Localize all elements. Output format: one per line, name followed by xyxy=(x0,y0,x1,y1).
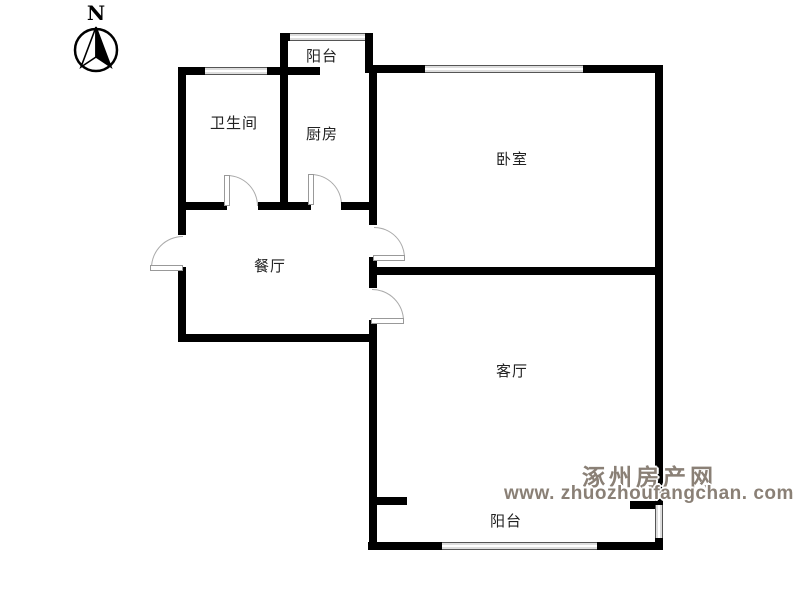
window-balcony-bottom xyxy=(442,542,597,550)
entry-door-arc xyxy=(151,236,183,268)
wall-wet-bottom-c xyxy=(341,202,377,210)
wall-spine-upper xyxy=(369,65,377,225)
wall-bedroom-bottom xyxy=(373,267,663,275)
north-compass-icon: N xyxy=(70,2,122,80)
window-bedroom xyxy=(425,65,583,73)
bathroom-door-leaf xyxy=(224,175,230,206)
window-balcony-top xyxy=(290,33,365,41)
entry-door-leaf xyxy=(150,265,183,271)
bedroom-door-leaf xyxy=(373,255,405,261)
bedroom-door-arc xyxy=(374,227,405,258)
wall-right-upper xyxy=(655,65,663,505)
window-balcony-right xyxy=(655,505,663,538)
bathroom-door-arc xyxy=(227,175,258,206)
wall-wet-bottom-b xyxy=(258,202,311,210)
watermark-site-url: www. zhuozhoufangchan. com xyxy=(504,483,794,505)
living-door-leaf xyxy=(371,318,404,324)
window-bathroom xyxy=(205,67,267,75)
kitchen-door-arc xyxy=(311,174,342,205)
compass-needle-icon xyxy=(72,24,120,76)
kitchen-door-leaf xyxy=(308,174,314,205)
wall-living-balcony-stub-left xyxy=(369,497,407,505)
room-label-balcony-top: 阳台 xyxy=(306,45,338,66)
wall-bathroom-kitchen-divider xyxy=(280,33,288,210)
room-label-kitchen: 厨房 xyxy=(306,123,338,144)
wall-left-lower xyxy=(178,267,186,342)
room-label-bedroom: 卧室 xyxy=(496,148,528,169)
wall-dining-bottom xyxy=(178,334,377,342)
floor-plan: N 阳台 卫生间 厨房 卧室 餐厅 客厅 阳台 xyxy=(0,0,800,600)
room-label-balcony-bottom: 阳台 xyxy=(490,510,522,531)
wall-wet-bottom-a xyxy=(178,202,227,210)
room-label-living: 客厅 xyxy=(496,360,528,381)
room-label-dining: 餐厅 xyxy=(254,255,286,276)
wall-spine-lower xyxy=(369,320,377,550)
living-door-arc xyxy=(372,289,404,321)
room-label-bathroom: 卫生间 xyxy=(210,112,258,133)
compass-north-label: N xyxy=(70,2,122,24)
